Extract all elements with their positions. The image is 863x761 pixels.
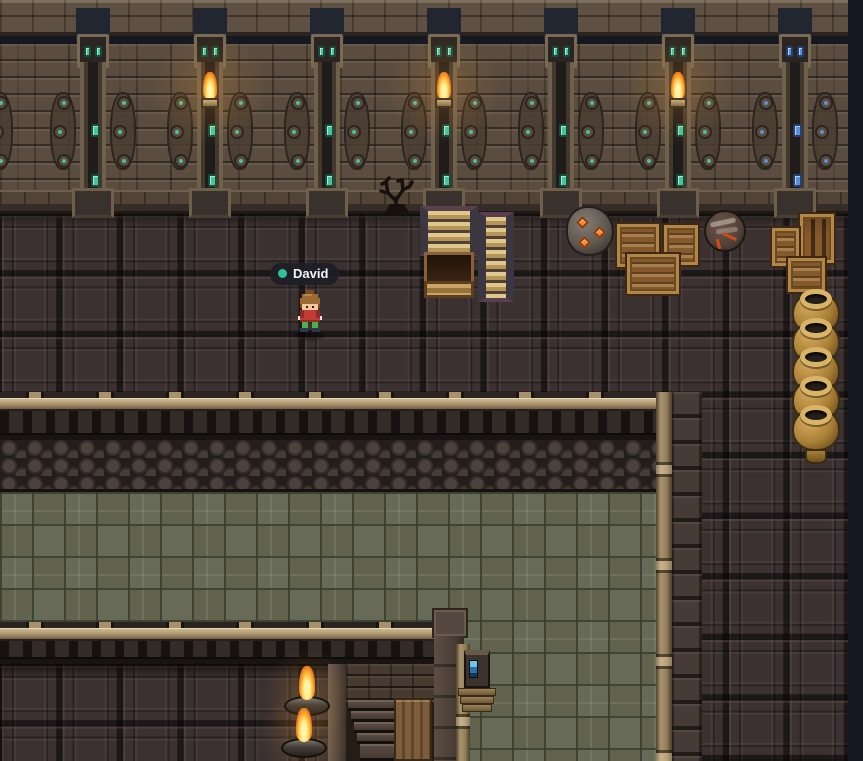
pillar-gem-knob <box>468 154 482 168</box>
pillar-gem <box>91 124 100 137</box>
plank-ladder <box>478 212 514 302</box>
pillar-ornament-wing <box>578 92 604 170</box>
player-name: David <box>293 267 328 280</box>
pillar-gem <box>208 124 217 137</box>
fence-base <box>0 657 436 664</box>
pillar-ornament-wing <box>284 92 310 170</box>
pillar-gem <box>559 174 568 187</box>
pillar-gem-knob <box>113 125 127 139</box>
wooden-crate <box>625 252 681 296</box>
rough-brick-column <box>672 392 702 761</box>
pot-rim <box>800 318 832 338</box>
pillar-gem-knob <box>174 154 188 168</box>
wooden-crate <box>786 256 827 294</box>
pillar-ornament-wing <box>167 92 193 170</box>
pillar-gem-knob <box>581 125 595 139</box>
pillar-gem-knob <box>57 154 71 168</box>
pot-rim <box>800 376 832 396</box>
fence-rail <box>0 398 660 411</box>
torch-sconce <box>669 98 687 108</box>
pillar-gem <box>786 46 793 57</box>
pillar-foot <box>306 188 348 218</box>
pillar-gem <box>318 46 325 57</box>
torch-flame <box>437 72 451 100</box>
pillar-gem <box>676 174 685 187</box>
wood-step <box>462 704 492 712</box>
pillar-gem-knob <box>638 125 652 139</box>
pillar-gem-knob <box>702 154 716 168</box>
wall-pillar <box>165 8 255 218</box>
pillar-gem <box>329 46 336 57</box>
torch-flame <box>203 72 217 100</box>
pillar-gem-knob <box>585 96 599 110</box>
pillar-gem <box>208 174 217 187</box>
pillar-foot <box>189 188 231 218</box>
pillar-shaft <box>782 62 808 190</box>
pillar-gem <box>442 174 451 187</box>
pot-rim <box>800 289 832 309</box>
fence-posts <box>0 411 660 433</box>
cobblestone-wall-band <box>0 440 660 492</box>
pillar-gem-knob <box>702 96 716 110</box>
pot-rim <box>800 405 832 425</box>
railing-fence-lower <box>0 622 436 664</box>
pillar-gem-knob <box>698 125 712 139</box>
pillar-gem-knob <box>170 125 184 139</box>
cracked-boulder <box>704 210 746 252</box>
pillar-gem <box>325 174 334 187</box>
pillar-ornament-wing <box>110 92 136 170</box>
pillar-gem-knob <box>642 154 656 168</box>
pillar-gem-knob <box>0 125 4 139</box>
device-screen <box>469 660 478 678</box>
wood-step <box>460 696 494 704</box>
player-nametag: David <box>270 263 339 285</box>
pillar-gem <box>325 124 334 137</box>
pillar-gem <box>797 46 804 57</box>
doorway-stairwell[interactable] <box>346 664 434 761</box>
pillar-gem <box>793 124 802 137</box>
torch-flame <box>671 72 685 100</box>
presence-dot <box>278 269 287 278</box>
pillar-ornament-wing <box>344 92 370 170</box>
pillar-gem <box>201 46 208 57</box>
clay-pot <box>792 407 840 451</box>
pillar-ornament-wing <box>227 92 253 170</box>
pillar-gem <box>680 46 687 57</box>
pillar-gem <box>552 46 559 57</box>
wall-pillar <box>633 8 723 218</box>
pillar-gem-knob <box>404 125 418 139</box>
pillar-gem-knob <box>117 96 131 110</box>
pillar-gem-knob <box>174 96 188 110</box>
pillar-ornament-wing <box>635 92 661 170</box>
pillar-ornament-wing <box>50 92 76 170</box>
pillar-gem-knob <box>230 125 244 139</box>
pot-rim <box>800 347 832 367</box>
open-crate <box>424 252 474 284</box>
wood-beam-pillar <box>656 392 672 761</box>
candle-sconce <box>281 708 329 761</box>
fence-rail <box>0 628 436 641</box>
pillar-gem <box>563 46 570 57</box>
pillar-ornament-wing <box>752 92 778 170</box>
pillar-gem <box>91 174 100 187</box>
pillar-shaft <box>80 62 106 190</box>
candle-flame <box>299 666 315 700</box>
pillar-gem-knob <box>57 96 71 110</box>
pillar-gem-knob <box>525 154 539 168</box>
pillar-gem-knob <box>117 154 131 168</box>
pillar-gem <box>212 46 219 57</box>
pillar-gem-knob <box>468 96 482 110</box>
pillar-gem-knob <box>525 96 539 110</box>
candle-flame <box>296 708 312 742</box>
pillar-foot <box>657 188 699 218</box>
plank-shelf <box>420 206 478 256</box>
pillar-ornament-wing <box>518 92 544 170</box>
right-edge-bar <box>848 0 863 761</box>
pillar-gem-knob <box>408 96 422 110</box>
pillar-gem-knob <box>291 154 305 168</box>
pillar-gem <box>95 46 102 57</box>
ore-rock <box>566 206 614 256</box>
pillar-gem <box>676 124 685 137</box>
pillar-gem-knob <box>0 96 8 110</box>
antler-trophy <box>374 174 418 218</box>
pillar-gem-knob <box>408 154 422 168</box>
pillar-gem-knob <box>291 96 305 110</box>
wall-pillar <box>282 8 372 218</box>
pillar-ornament-wing <box>695 92 721 170</box>
wall-device-panel[interactable] <box>464 650 490 688</box>
pillar-gem-knob <box>53 125 67 139</box>
railing-fence-upper <box>0 392 660 440</box>
pillar-gem-knob <box>759 154 773 168</box>
wall-pillar <box>48 8 138 218</box>
pillar-foot <box>72 188 114 218</box>
pillar-shaft <box>548 62 574 190</box>
pillar-ornament-wing <box>812 92 838 170</box>
pillar-gem <box>442 124 451 137</box>
pillar-shaft <box>314 62 340 190</box>
pillar-ornament-wing <box>401 92 427 170</box>
pillar-gem <box>793 174 802 187</box>
torch-sconce <box>435 98 453 108</box>
pillar-gem-knob <box>521 125 535 139</box>
pillar-gem-knob <box>464 125 478 139</box>
pillar-gem-knob <box>819 96 833 110</box>
pillar-gem-knob <box>347 125 361 139</box>
wood-step <box>458 688 496 696</box>
player-avatar[interactable] <box>292 290 328 337</box>
pillar-ornament-wing <box>461 92 487 170</box>
pillar-gem-knob <box>642 96 656 110</box>
pillar-gem-knob <box>585 154 599 168</box>
fence-posts <box>0 641 436 657</box>
pillar-gem-knob <box>755 125 769 139</box>
wooden-door-slab <box>394 698 432 761</box>
wall-pillar <box>750 8 840 218</box>
wall-pillar <box>516 8 606 218</box>
crate-planks <box>424 281 474 298</box>
pillar-gem-knob <box>351 96 365 110</box>
pillar-gem-knob <box>234 96 248 110</box>
pillar-gem <box>559 124 568 137</box>
structure-corner-block <box>432 608 468 638</box>
pillar-gem-knob <box>759 96 773 110</box>
torch-sconce <box>201 98 219 108</box>
stairwell-back-wall <box>346 664 434 702</box>
pillar-gem <box>669 46 676 57</box>
pillar-gem <box>84 46 91 57</box>
pillar-gem-knob <box>815 125 829 139</box>
pot-foot <box>805 449 827 464</box>
pillar-gem <box>435 46 442 57</box>
pillar-gem-knob <box>819 154 833 168</box>
pillar-gem-knob <box>351 154 365 168</box>
pillar-gem <box>446 46 453 57</box>
fence-base <box>0 433 660 440</box>
pillar-gem-knob <box>234 154 248 168</box>
pillar-gem-knob <box>287 125 301 139</box>
game-viewport[interactable]: David <box>0 0 863 761</box>
